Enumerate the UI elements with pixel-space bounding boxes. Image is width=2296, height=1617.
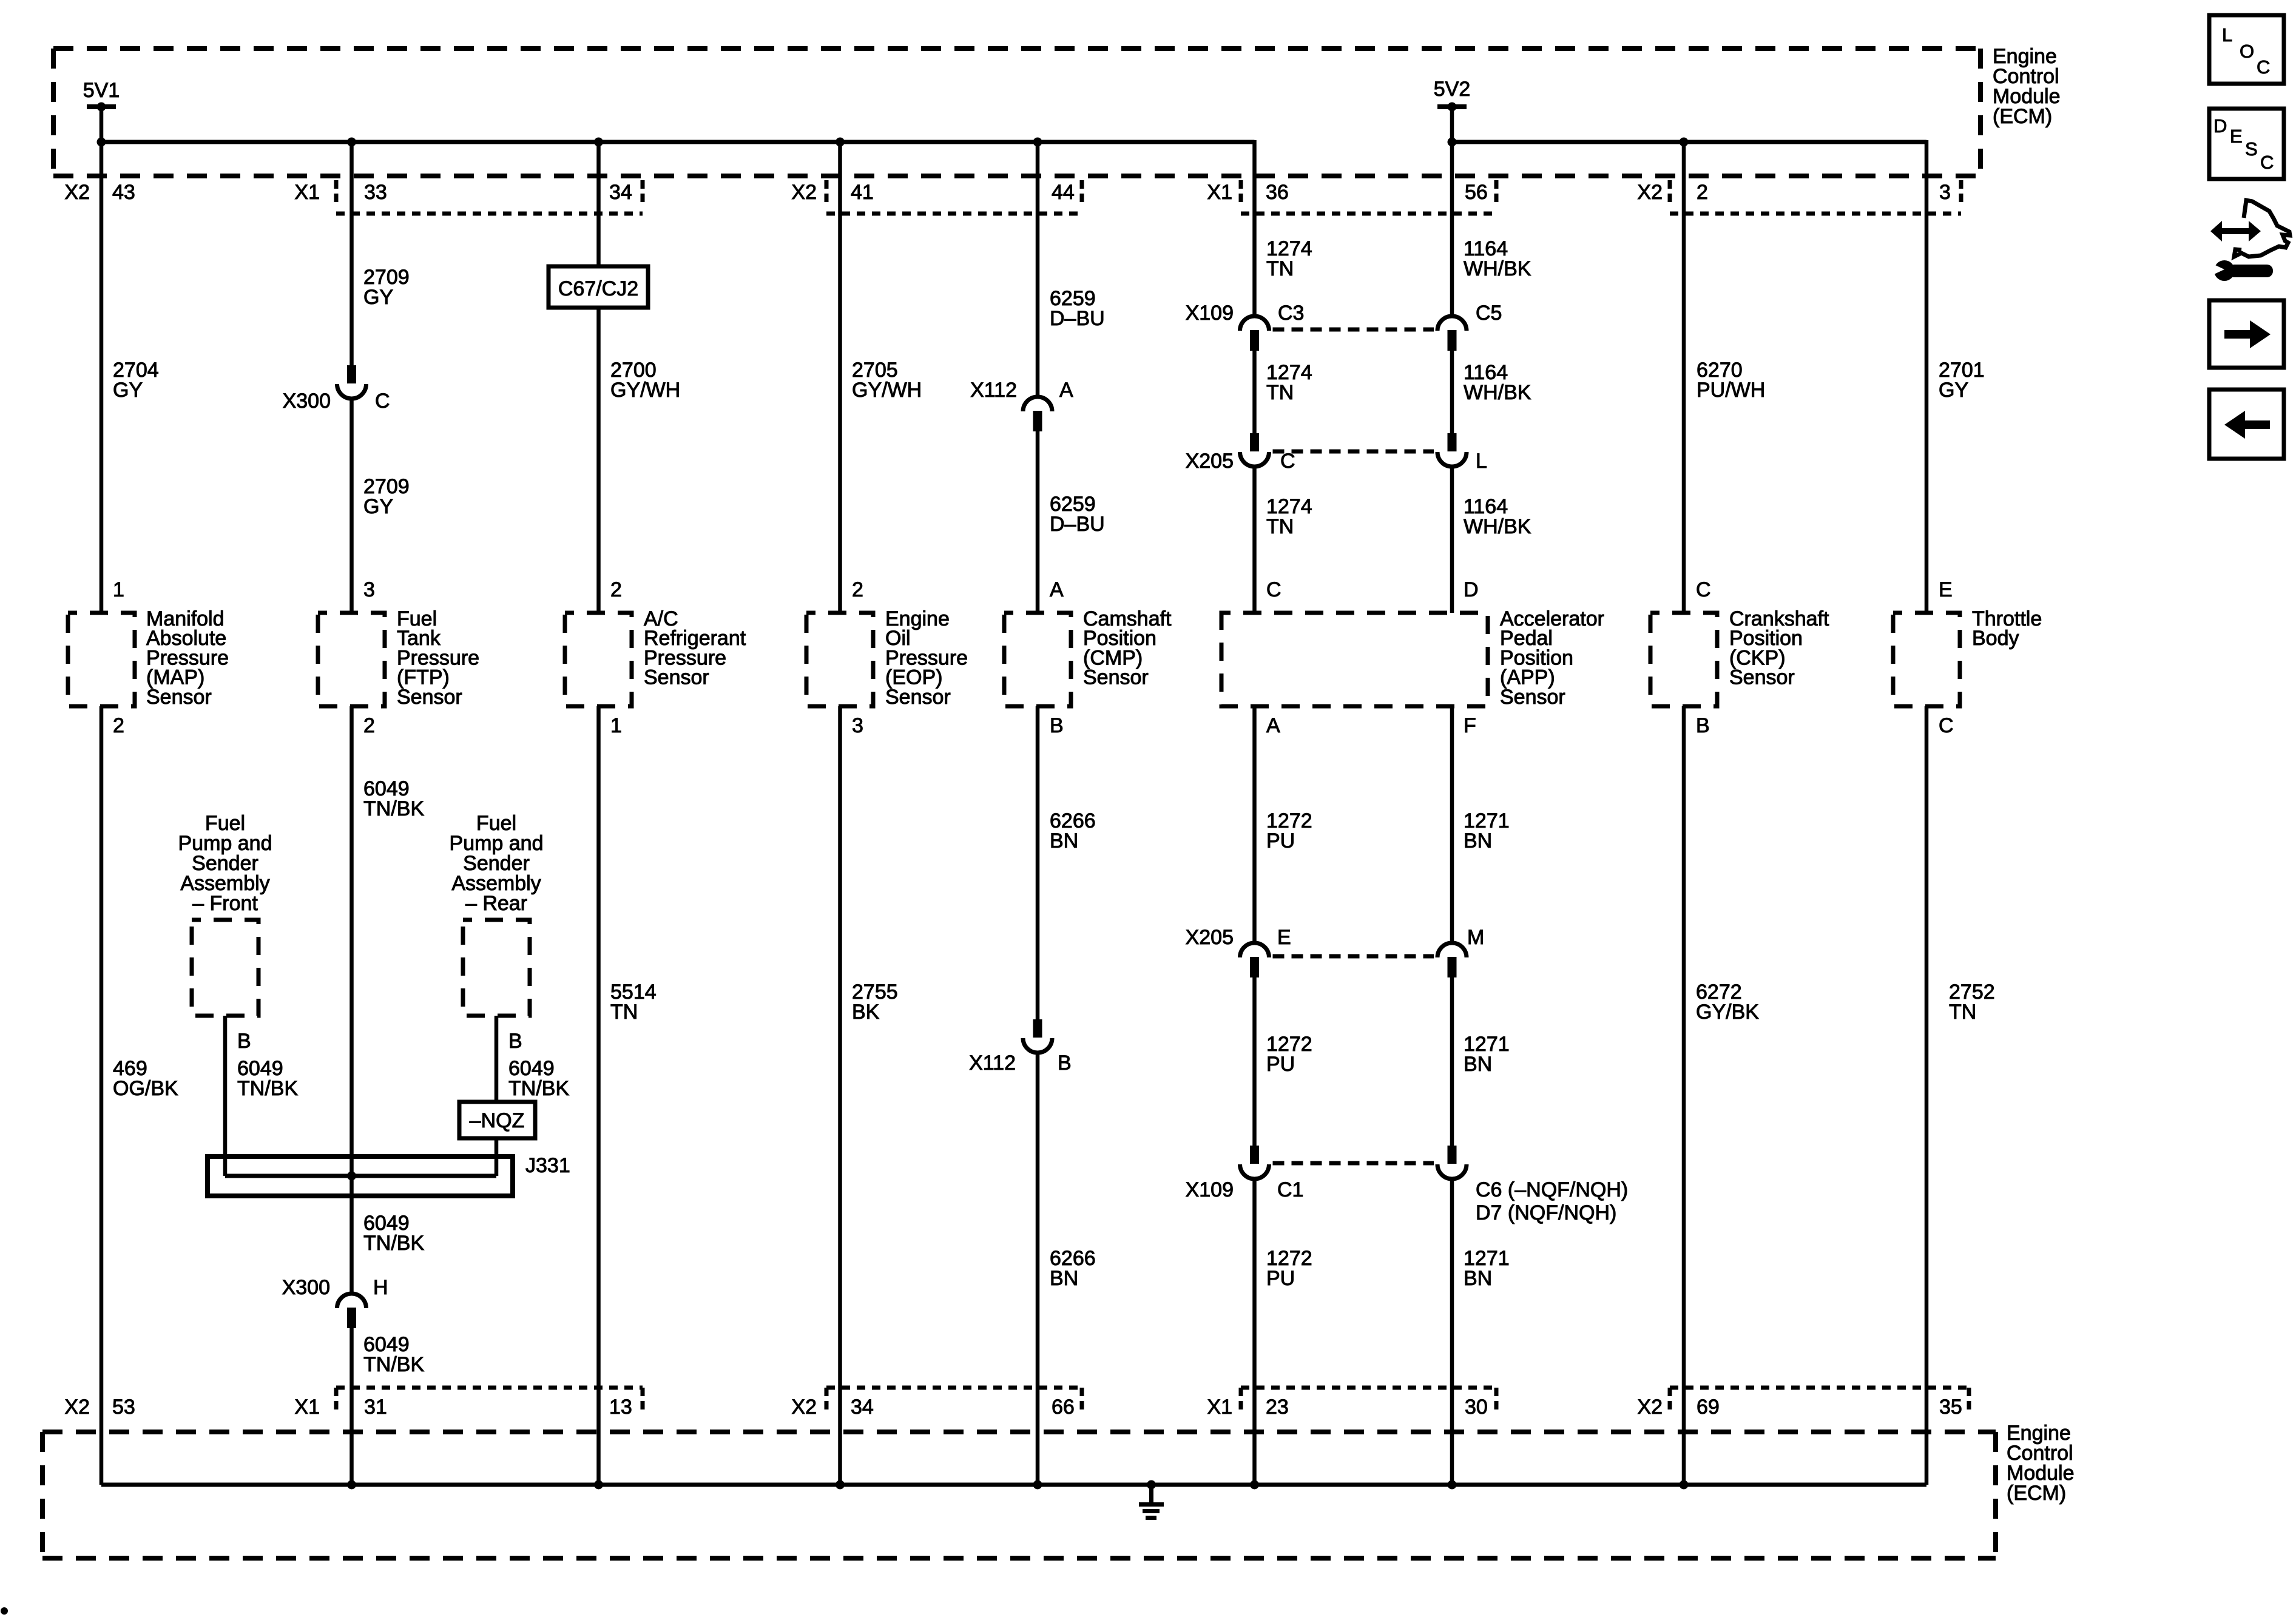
svg-text:B: B <box>508 1030 522 1053</box>
svg-text:Sensor: Sensor <box>1729 666 1795 689</box>
svg-text:34: 34 <box>851 1396 874 1419</box>
svg-text:TN: TN <box>1949 1001 1976 1024</box>
svg-text:2: 2 <box>363 714 375 737</box>
svg-text:X2: X2 <box>64 1396 90 1419</box>
svg-text:23: 23 <box>1266 1396 1289 1419</box>
svg-text:X205: X205 <box>1186 450 1234 473</box>
svg-text:X2: X2 <box>64 181 90 204</box>
svg-text:3: 3 <box>363 578 375 601</box>
svg-text:L: L <box>1476 450 1487 473</box>
svg-text:WH/BK: WH/BK <box>1464 381 1531 404</box>
svg-text:–NQZ: –NQZ <box>470 1109 525 1132</box>
svg-text:BK: BK <box>852 1001 880 1024</box>
svg-text:GY: GY <box>113 379 143 402</box>
svg-text:X2: X2 <box>1637 1396 1663 1419</box>
svg-text:43: 43 <box>112 181 135 204</box>
svg-text:1: 1 <box>113 578 124 601</box>
svg-text:GY/WH: GY/WH <box>610 379 680 402</box>
svg-text:3: 3 <box>852 714 863 737</box>
svg-text:Sensor: Sensor <box>1500 686 1565 709</box>
svg-text:TN: TN <box>1266 257 1294 280</box>
svg-text:X1: X1 <box>1207 181 1232 204</box>
svg-text:TN: TN <box>1266 381 1294 404</box>
svg-text:TN: TN <box>610 1001 638 1024</box>
svg-text:X205: X205 <box>1186 926 1234 949</box>
svg-text:GY/WH: GY/WH <box>852 379 922 402</box>
svg-text:2: 2 <box>1697 181 1708 204</box>
svg-text:X1: X1 <box>294 1396 320 1419</box>
svg-text:31: 31 <box>364 1396 387 1419</box>
svg-text:X109: X109 <box>1186 302 1234 325</box>
svg-text:56: 56 <box>1465 181 1488 204</box>
svg-text:41: 41 <box>851 181 874 204</box>
svg-text:C3: C3 <box>1278 302 1304 325</box>
svg-text:PU: PU <box>1266 1053 1295 1076</box>
svg-text:13: 13 <box>609 1396 632 1419</box>
svg-text:1: 1 <box>610 714 622 737</box>
svg-text:Sensor: Sensor <box>1083 666 1149 689</box>
svg-text:X1: X1 <box>294 181 320 204</box>
svg-text:BN: BN <box>1464 1053 1492 1076</box>
svg-text:X1: X1 <box>1207 1396 1232 1419</box>
svg-text:X109: X109 <box>1186 1178 1234 1201</box>
svg-text:D–BU: D–BU <box>1050 307 1105 330</box>
svg-text:X2: X2 <box>791 181 817 204</box>
svg-text:D: D <box>1464 578 1479 601</box>
svg-text:X300: X300 <box>282 1276 330 1299</box>
svg-text:O: O <box>2240 41 2254 62</box>
svg-text:TN: TN <box>1266 515 1294 538</box>
svg-text:D–BU: D–BU <box>1050 513 1105 536</box>
svg-text:66: 66 <box>1052 1396 1075 1419</box>
svg-text:F: F <box>1464 714 1476 737</box>
svg-text:A: A <box>1059 379 1073 402</box>
svg-text:X2: X2 <box>791 1396 817 1419</box>
svg-text:TN/BK: TN/BK <box>363 797 424 820</box>
svg-text:J331: J331 <box>525 1154 570 1177</box>
svg-text:C67/CJ2: C67/CJ2 <box>558 277 638 300</box>
svg-text:GY: GY <box>1939 379 1968 402</box>
svg-text:D: D <box>2213 115 2227 137</box>
svg-text:C: C <box>1696 578 1711 601</box>
svg-text:E: E <box>1939 578 1953 601</box>
svg-text:TN/BK: TN/BK <box>363 1353 424 1376</box>
svg-text:C: C <box>1266 578 1281 601</box>
svg-text:2: 2 <box>113 714 124 737</box>
svg-text:5V1: 5V1 <box>83 79 120 102</box>
svg-text:5V2: 5V2 <box>1434 78 1471 101</box>
svg-text:A: A <box>1050 578 1064 601</box>
svg-text:C1: C1 <box>1277 1178 1303 1201</box>
svg-text:35: 35 <box>1939 1396 1962 1419</box>
svg-text:M: M <box>1467 926 1484 949</box>
svg-text:X112: X112 <box>970 379 1017 402</box>
svg-text:Sensor: Sensor <box>146 686 212 709</box>
svg-text:PU: PU <box>1266 829 1295 852</box>
svg-text:Sensor: Sensor <box>885 686 951 709</box>
svg-text:69: 69 <box>1697 1396 1720 1419</box>
svg-text:GY: GY <box>363 286 393 309</box>
svg-text:L: L <box>2222 24 2232 46</box>
svg-text:WH/BK: WH/BK <box>1464 257 1531 280</box>
svg-text:33: 33 <box>364 181 387 204</box>
svg-text:C: C <box>375 390 390 413</box>
svg-text:– Front: – Front <box>192 892 258 915</box>
svg-text:C: C <box>2260 152 2274 173</box>
svg-text:X2: X2 <box>1637 181 1663 204</box>
svg-text:BN: BN <box>1464 829 1492 852</box>
svg-text:(ECM): (ECM) <box>2007 1482 2066 1505</box>
svg-text:X300: X300 <box>283 390 331 413</box>
svg-text:OG/BK: OG/BK <box>113 1077 178 1100</box>
svg-text:TN/BK: TN/BK <box>237 1077 298 1100</box>
svg-text:(ECM): (ECM) <box>1993 105 2052 128</box>
svg-text:TN/BK: TN/BK <box>508 1077 569 1100</box>
svg-text:B: B <box>1050 714 1064 737</box>
svg-text:B: B <box>1058 1052 1072 1075</box>
svg-text:30: 30 <box>1465 1396 1488 1419</box>
svg-text:B: B <box>1696 714 1710 737</box>
svg-text:36: 36 <box>1266 181 1289 204</box>
svg-text:S: S <box>2245 138 2258 160</box>
svg-text:53: 53 <box>112 1396 135 1419</box>
svg-text:2: 2 <box>852 578 863 601</box>
svg-text:GY/BK: GY/BK <box>1696 1001 1759 1024</box>
svg-text:3: 3 <box>1939 181 1951 204</box>
svg-text:X112: X112 <box>969 1052 1016 1075</box>
svg-text:2: 2 <box>610 578 622 601</box>
svg-text:Sensor: Sensor <box>397 686 462 709</box>
svg-text:PU/WH: PU/WH <box>1697 379 1765 402</box>
svg-text:44: 44 <box>1052 181 1075 204</box>
svg-text:H: H <box>373 1276 388 1299</box>
svg-text:C: C <box>1939 714 1954 737</box>
svg-text:GY: GY <box>363 495 393 518</box>
svg-text:Body: Body <box>1972 627 2019 650</box>
svg-text:BN: BN <box>1050 829 1078 852</box>
svg-text:WH/BK: WH/BK <box>1464 515 1531 538</box>
svg-text:C6 (–NQF/NQH): C6 (–NQF/NQH) <box>1476 1178 1628 1201</box>
svg-text:D7 (NQF/NQH): D7 (NQF/NQH) <box>1476 1201 1616 1224</box>
svg-text:BN: BN <box>1464 1267 1492 1290</box>
svg-text:E: E <box>1277 926 1291 949</box>
svg-text:PU: PU <box>1266 1267 1295 1290</box>
svg-text:E: E <box>2230 126 2243 147</box>
svg-text:A: A <box>1266 714 1280 737</box>
svg-text:B: B <box>237 1030 251 1053</box>
svg-text:TN/BK: TN/BK <box>363 1232 424 1255</box>
svg-text:34: 34 <box>609 181 632 204</box>
svg-text:C5: C5 <box>1476 302 1502 325</box>
svg-text:C: C <box>2257 56 2270 78</box>
svg-text:– Rear: – Rear <box>465 892 527 915</box>
svg-text:Sensor: Sensor <box>644 666 709 689</box>
svg-text:BN: BN <box>1050 1267 1078 1290</box>
